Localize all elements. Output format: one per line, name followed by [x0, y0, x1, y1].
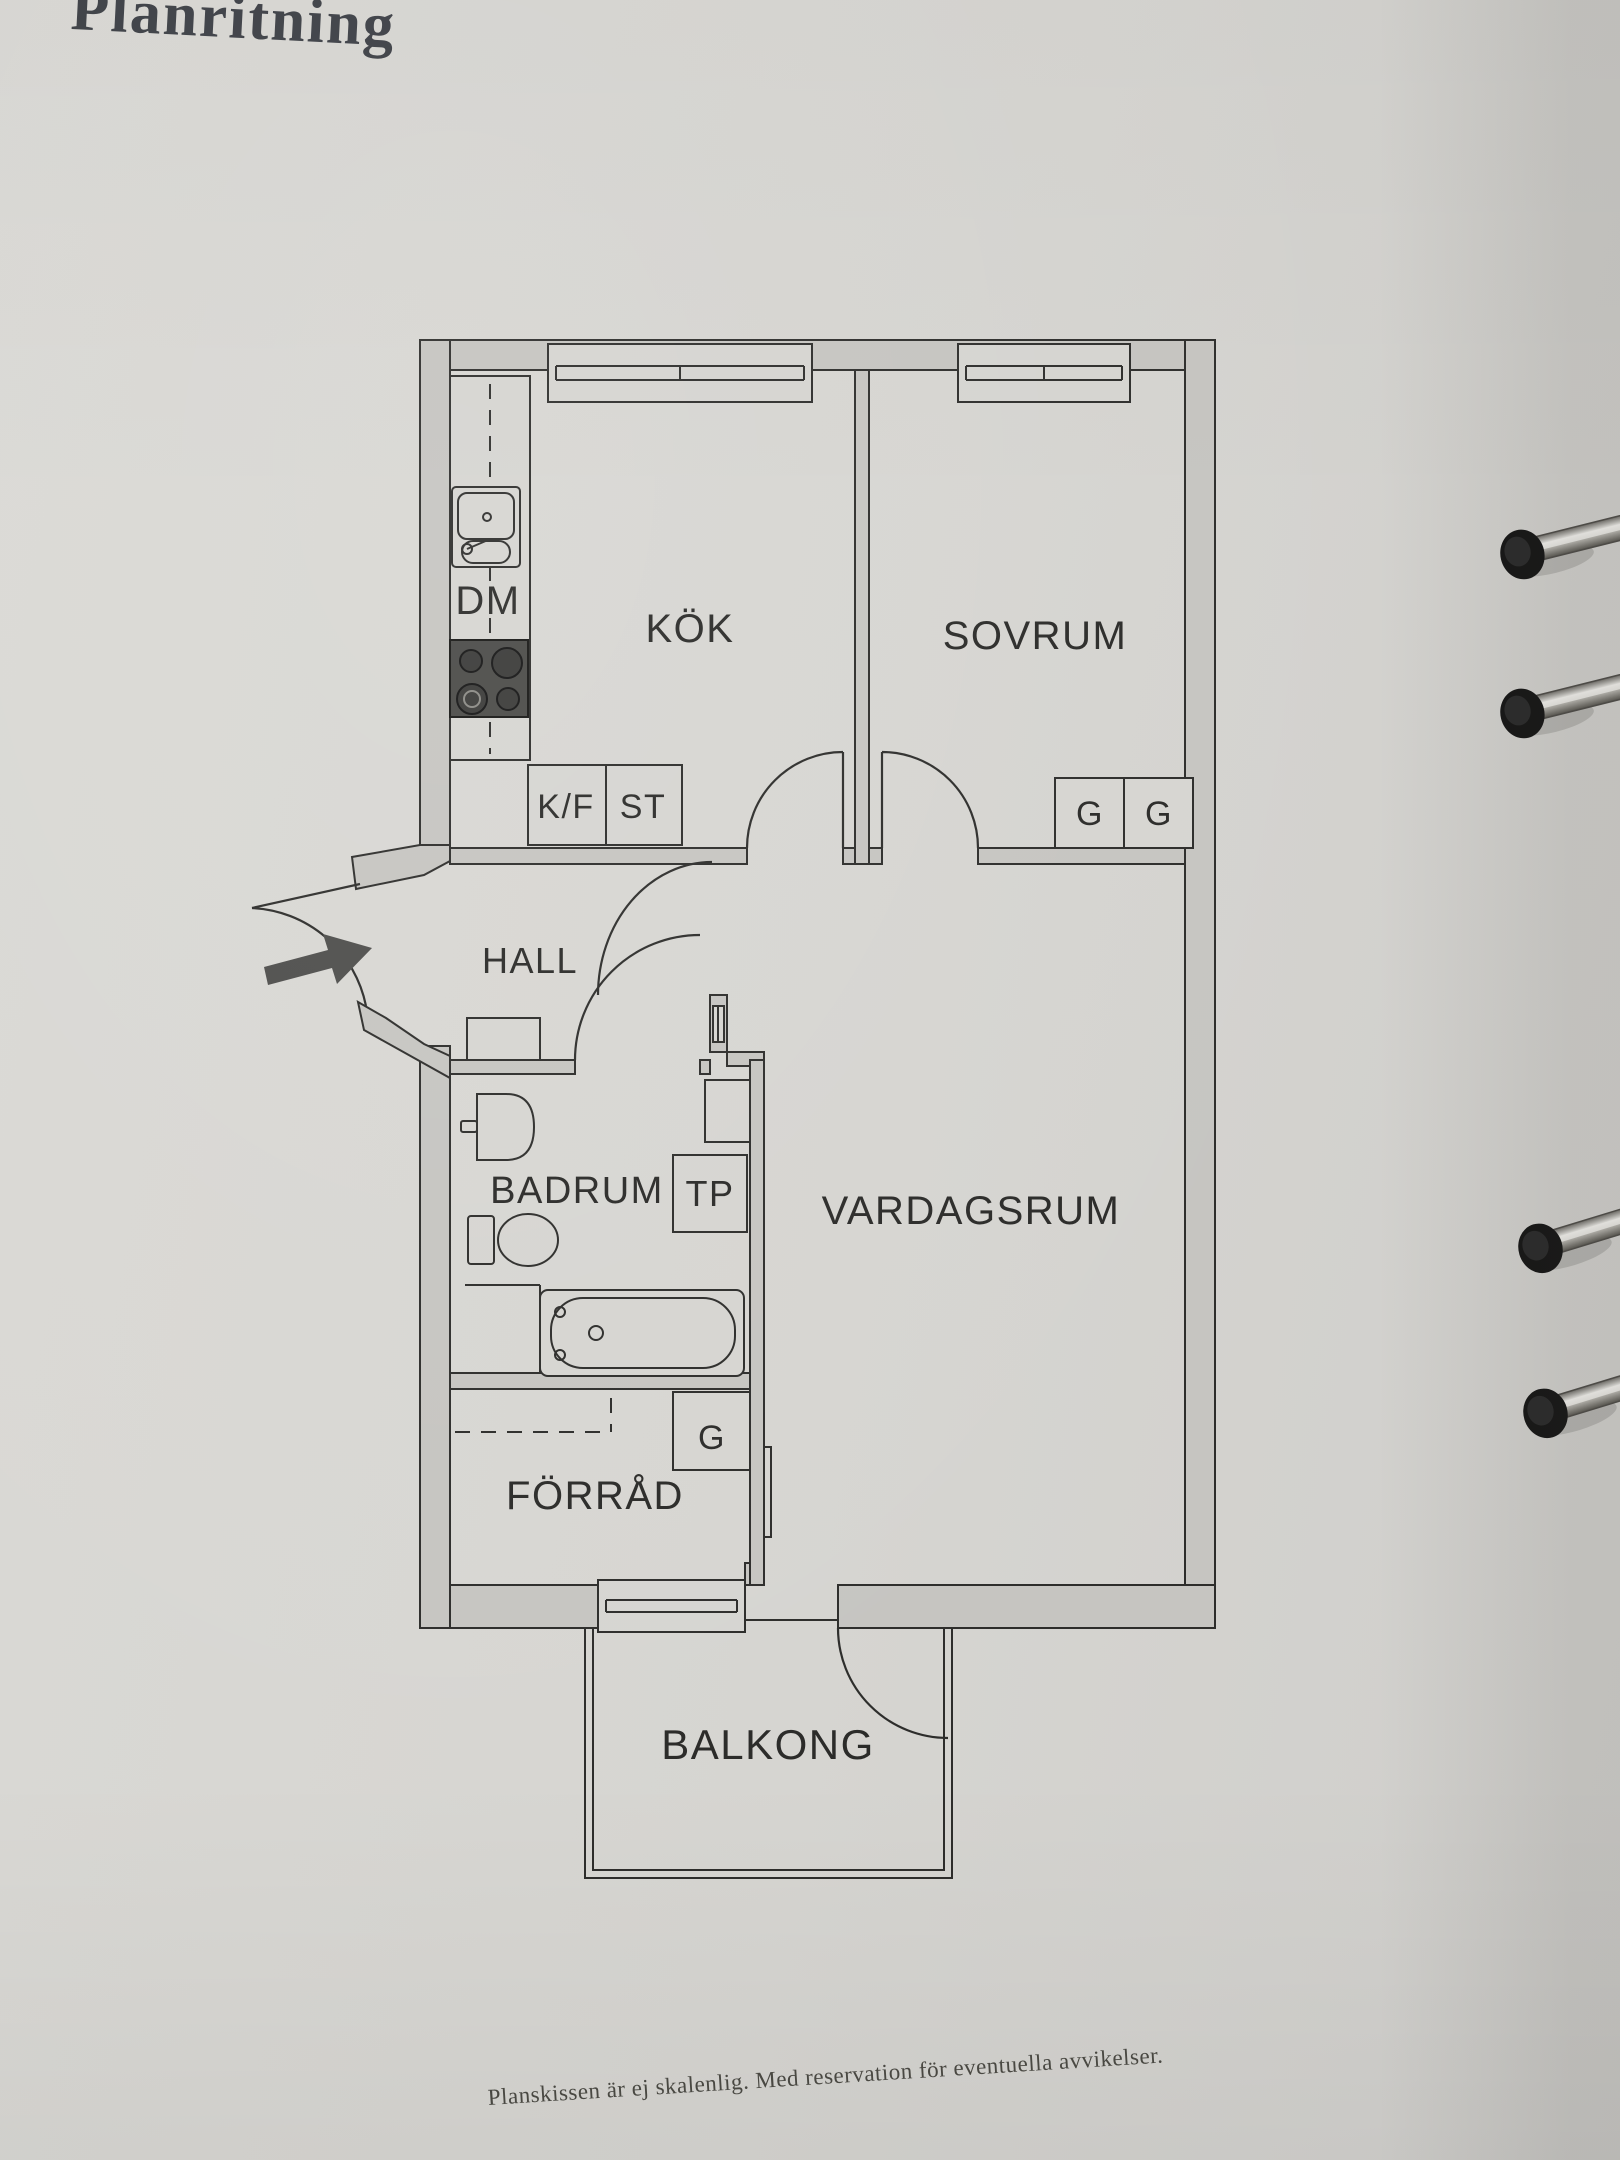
bedroom-window-icon [958, 344, 1130, 402]
livingroom-window-icon [598, 1580, 745, 1632]
room-label-badrum: BADRUM [490, 1170, 664, 1212]
binder-ring-icon [1495, 497, 1620, 585]
label-wardrobe: G [1076, 795, 1104, 833]
storage-dashed-line [455, 1398, 611, 1432]
stove-icon [450, 640, 528, 717]
door-leaf [764, 1447, 771, 1537]
toilet-icon [468, 1214, 558, 1266]
room-label-balkong: BALKONG [661, 1721, 875, 1768]
label-tp: TP [685, 1173, 734, 1214]
washbasin-icon [461, 1094, 534, 1160]
binder-ring-icon [1495, 656, 1620, 744]
room-label-vardagsrum: VARDAGSRUM [822, 1189, 1121, 1233]
room-label-forrad: FÖRRÅD [506, 1473, 684, 1518]
floorplan-drawing: KÖK SOVRUM HALL BADRUM VARDAGSRUM FÖRRÅD… [0, 0, 1620, 2160]
label-fridge-freezer: K/F [537, 788, 594, 826]
label-st: ST [620, 788, 666, 826]
hall-closet [467, 1018, 540, 1060]
kitchen-sink-icon [452, 487, 520, 567]
room-label-kok: KÖK [646, 607, 735, 651]
label-dishwasher: DM [455, 579, 520, 623]
binder-ring-icon [1517, 1349, 1620, 1445]
room-label-hall: HALL [482, 940, 578, 981]
ventilation-shaft [705, 1080, 750, 1142]
kitchen-window-icon [548, 344, 812, 402]
room-label-sovrum: SOVRUM [943, 614, 1128, 658]
bathtub-icon [540, 1290, 744, 1376]
binder-ring-icon [1512, 1184, 1620, 1280]
label-wardrobe: G [698, 1419, 726, 1457]
photographed-floorplan-page: { "page": { "title": "Planritning", "cap… [0, 0, 1620, 2160]
label-wardrobe: G [1145, 795, 1173, 833]
glass-sidelight-icon [713, 1006, 724, 1042]
